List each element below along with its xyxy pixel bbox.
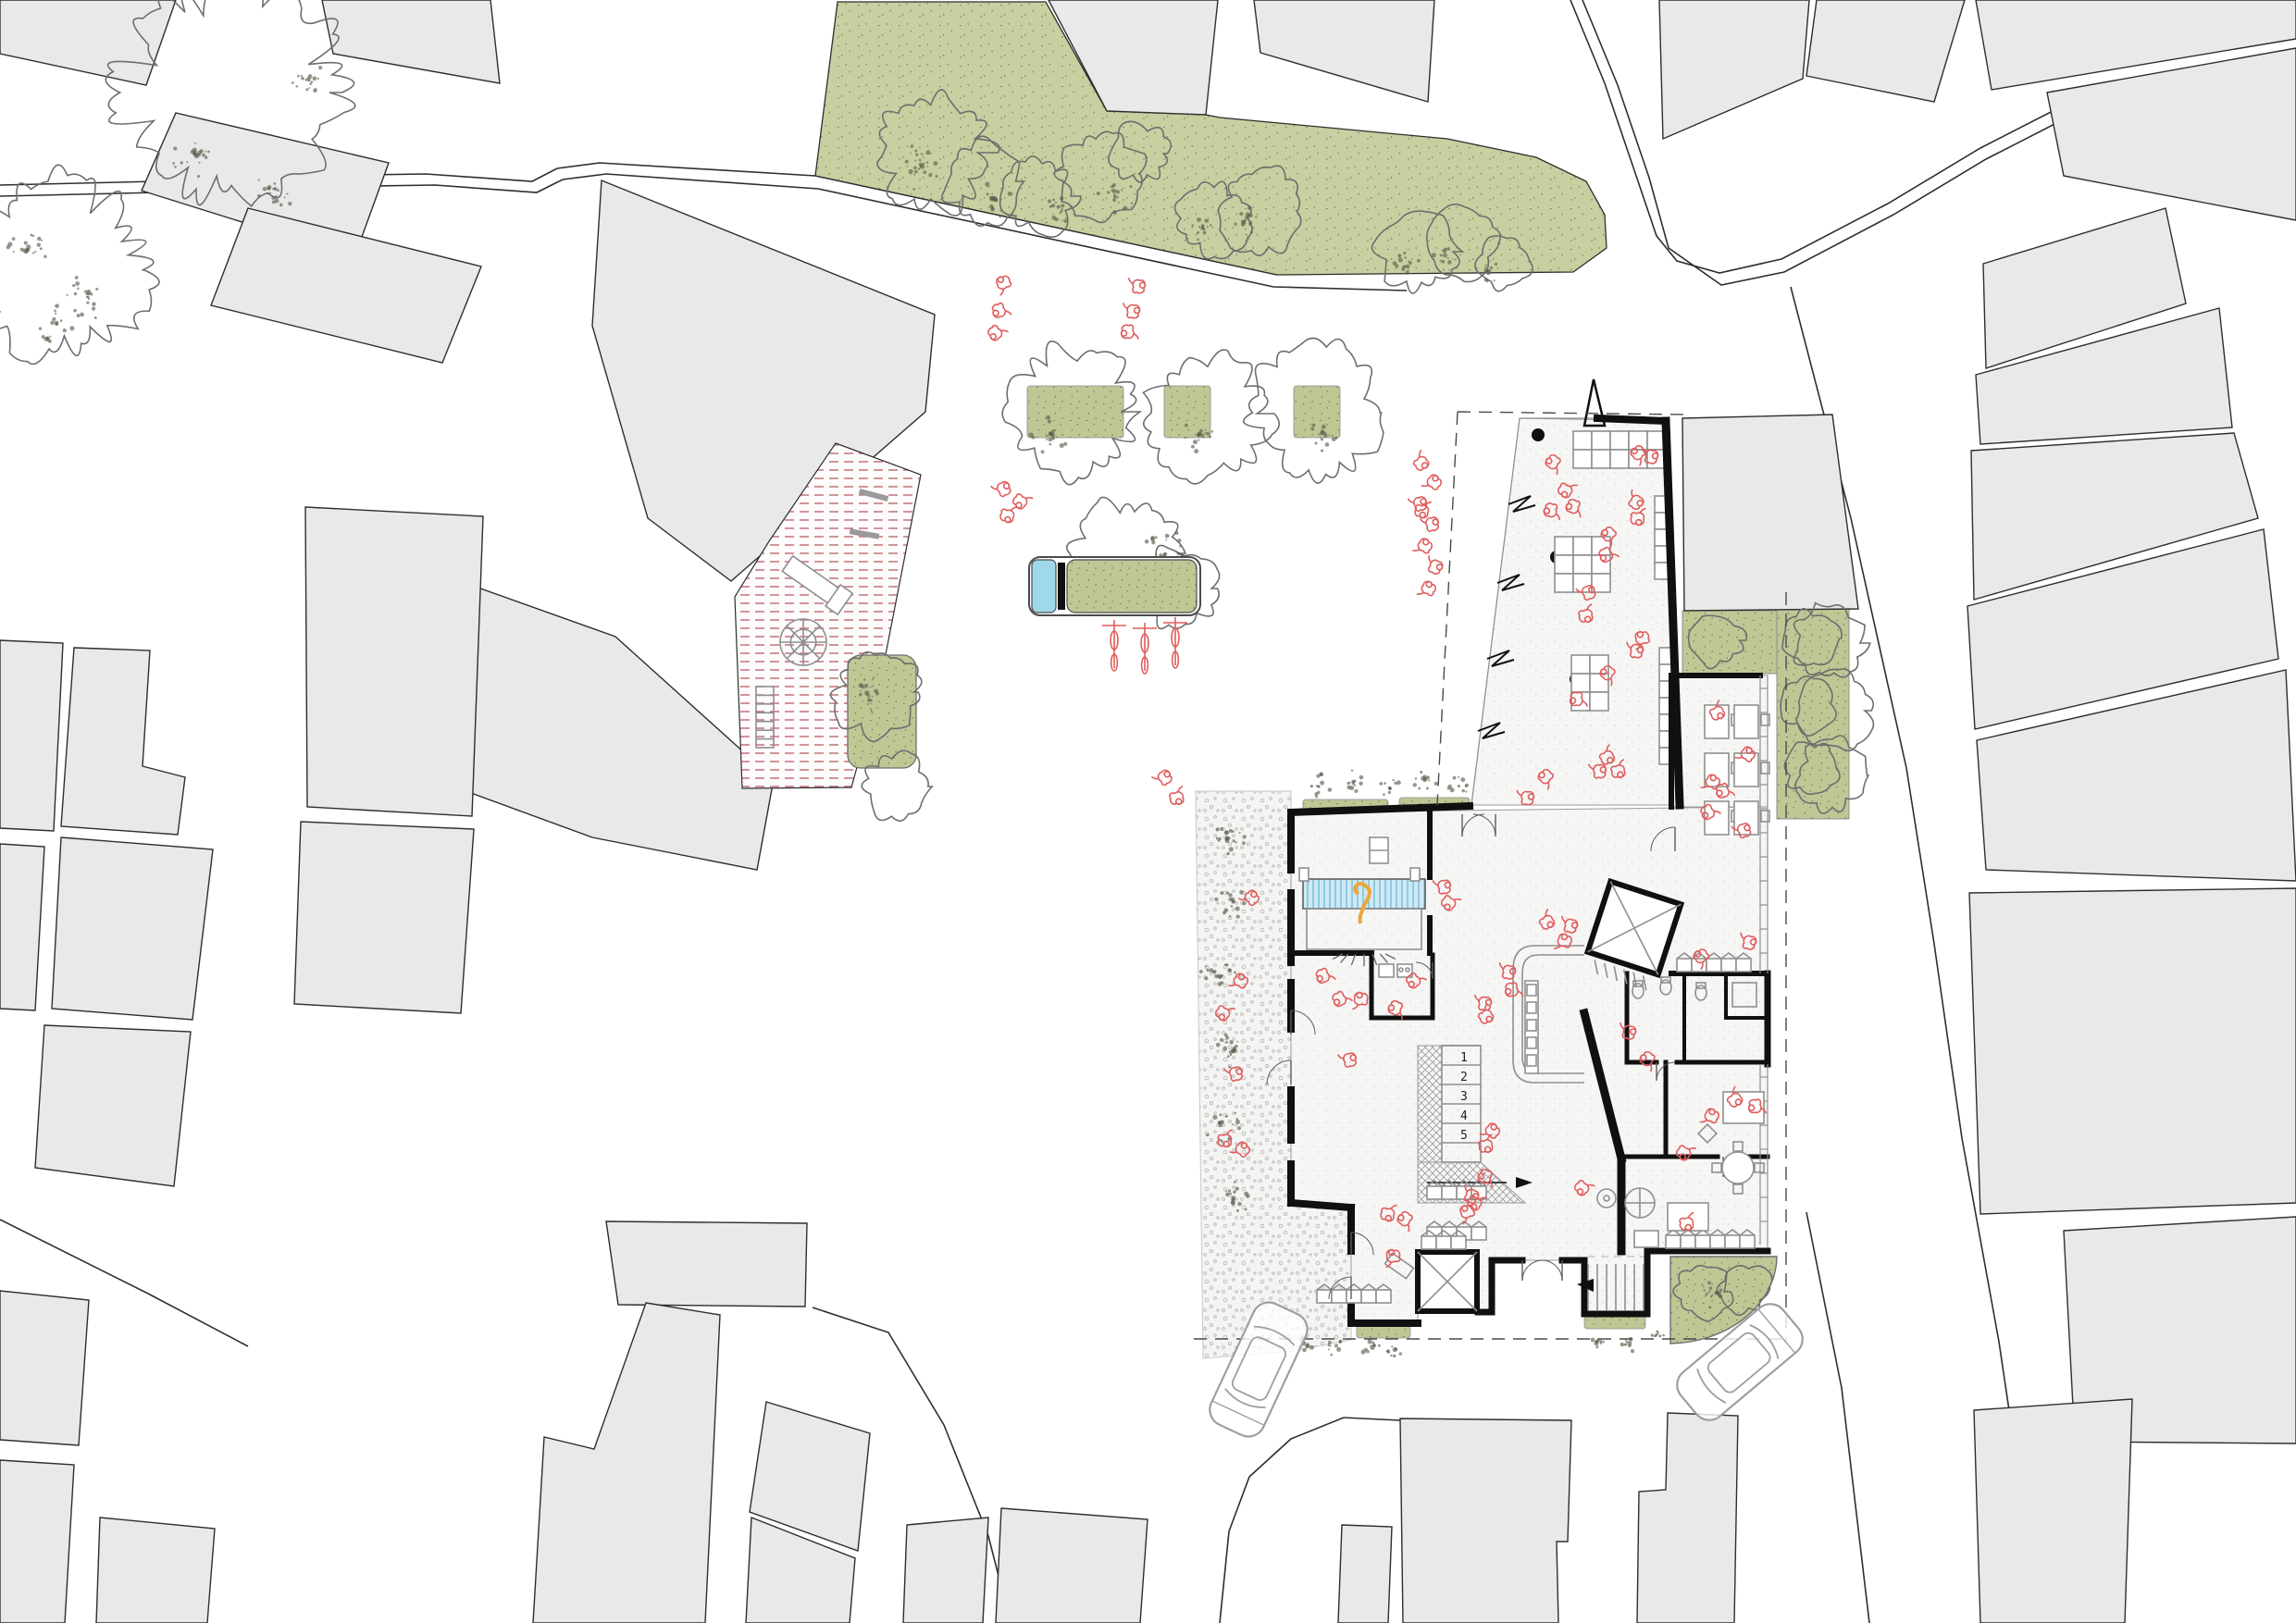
context-building: [533, 1303, 720, 1623]
market-shelf: [1629, 431, 1647, 450]
foliage-speckle: [1651, 1330, 1665, 1337]
garden-bed: [1682, 611, 1777, 674]
wall: [1597, 418, 1666, 421]
market-shelf: [1590, 674, 1608, 692]
planter-box: [1436, 1236, 1451, 1249]
context-building: [0, 640, 63, 831]
bicycle: [1102, 620, 1126, 671]
person-figure: [986, 321, 1008, 343]
market-shelf: [1555, 555, 1573, 574]
person-figure: [1409, 450, 1432, 472]
person-figure: [1408, 494, 1428, 513]
person-figure: [1127, 278, 1146, 293]
planter-box: [1376, 1290, 1391, 1303]
context-building: [606, 1221, 807, 1307]
office-desk: [1734, 705, 1758, 738]
property-line: [1458, 412, 1684, 415]
foliage-speckle: [6, 234, 47, 258]
market-shelf: [1571, 655, 1590, 674]
road: [1220, 1418, 1344, 1623]
office-desk: [1705, 753, 1729, 787]
planter-box: [1695, 1235, 1710, 1248]
planter-box: [1681, 1235, 1695, 1248]
floor-hall: [1471, 418, 1680, 805]
stair-number: 5: [1460, 1129, 1468, 1143]
road: [1806, 1212, 1869, 1623]
round-table: [1722, 1152, 1754, 1183]
kitchen-appliance: [1379, 964, 1394, 977]
planter-box: [1666, 1235, 1681, 1248]
context-building: [903, 1518, 988, 1623]
person-figure: [1121, 325, 1138, 340]
bicycle: [1133, 623, 1157, 674]
stair-number: 3: [1460, 1090, 1468, 1104]
foliage-speckle: [1413, 771, 1438, 790]
person-figure: [999, 504, 1017, 525]
context-building: [1682, 415, 1858, 611]
foliage-speckle: [1361, 1339, 1381, 1354]
market-shelf: [1592, 431, 1610, 450]
market-shelf: [1573, 431, 1592, 450]
foliage-speckle: [67, 276, 99, 319]
market-shelf: [1573, 555, 1592, 574]
planter-box: [1361, 1290, 1376, 1303]
person-figure: [1151, 767, 1173, 788]
foliage-speckle: [1379, 779, 1400, 796]
market-shelf: [1555, 574, 1573, 592]
foliage-speckle: [1310, 772, 1333, 798]
context-building: [0, 1460, 74, 1623]
planter-box: [1347, 1290, 1361, 1303]
stair-number: 1: [1460, 1051, 1468, 1065]
spider-web-climber: [780, 619, 826, 665]
person-figure: [1423, 555, 1445, 576]
site-plan-canvas: 12345: [0, 0, 2296, 1623]
planter-box: [1332, 1290, 1347, 1303]
foliage-speckle: [1447, 776, 1469, 793]
stair-number: 2: [1460, 1071, 1468, 1084]
wall: [1291, 1203, 1351, 1208]
person-figure: [1421, 472, 1444, 494]
planter-box: [1725, 1235, 1740, 1248]
context-building: [1974, 1399, 2132, 1623]
person-figure: [1122, 303, 1140, 318]
context-building: [322, 0, 500, 83]
planter-box: [1740, 1235, 1755, 1248]
planter-box: [1442, 1186, 1457, 1199]
foliage-speckle: [1347, 770, 1363, 793]
person-figure: [994, 274, 1013, 295]
context-building: [52, 837, 213, 1020]
context-building: [35, 1025, 191, 1186]
market-shelf: [1573, 537, 1592, 555]
planter-strip: [1164, 386, 1210, 438]
stair-number: 4: [1460, 1109, 1468, 1123]
copier: [1634, 1231, 1658, 1247]
planter-strip: [1294, 386, 1340, 438]
market-shelf: [1571, 674, 1590, 692]
planter-box: [1721, 959, 1736, 972]
person-figure: [991, 301, 1011, 320]
context-building: [305, 507, 483, 816]
context-building: [1338, 1525, 1392, 1623]
office-desk: [1705, 705, 1729, 738]
foliage-speckle: [39, 304, 75, 342]
planter-box: [1677, 959, 1692, 972]
tree-canopy: [1143, 350, 1279, 484]
food-truck: [1029, 557, 1200, 615]
context-building: [294, 822, 474, 1013]
person-figure: [1417, 579, 1437, 601]
person-figure: [991, 479, 1012, 500]
market-shelf: [1592, 450, 1610, 468]
planter-box: [1471, 1227, 1486, 1240]
market-shelf: [1555, 537, 1573, 555]
market-shelf: [1610, 431, 1629, 450]
context-building: [1637, 1413, 1738, 1623]
column: [1532, 428, 1545, 441]
market-shelf: [1590, 692, 1608, 711]
desk: [1668, 1203, 1708, 1231]
property-line: [1437, 412, 1458, 805]
context-building: [61, 648, 185, 835]
road: [1344, 1418, 1400, 1420]
context-building: [1400, 1419, 1571, 1623]
planter-box: [1736, 959, 1751, 972]
context-building: [1806, 0, 1965, 102]
planter-box: [1710, 1235, 1725, 1248]
bench: [1410, 868, 1420, 881]
context-building: [1969, 888, 2296, 1214]
market-shelf: [1573, 450, 1592, 468]
site-plan-svg: 12345: [0, 0, 2296, 1623]
context-building: [0, 844, 44, 1010]
road: [0, 163, 815, 185]
context-building: [0, 1291, 89, 1445]
planter-strip: [1584, 1316, 1645, 1329]
market-shelf: [1592, 537, 1610, 555]
context-building: [433, 576, 774, 870]
person-figure: [1169, 787, 1186, 806]
foliage-speckle: [1386, 1345, 1402, 1357]
planter-box: [1427, 1186, 1442, 1199]
market-shelf: [1610, 450, 1629, 468]
planter-box: [1421, 1236, 1436, 1249]
market-shelf: [1571, 692, 1590, 711]
office-desk: [1705, 801, 1729, 835]
person-figure: [1412, 536, 1433, 558]
context-building: [1659, 0, 1809, 139]
context-building: [96, 1518, 215, 1623]
planter-strip: [1027, 386, 1123, 438]
planter-strip: [1357, 1325, 1410, 1338]
stair-void-hatch: [1418, 1046, 1442, 1162]
context-building: [996, 1508, 1148, 1623]
foliage-speckle: [292, 66, 322, 93]
planter-box: [1451, 1236, 1466, 1249]
planter-box: [1706, 959, 1721, 972]
context-building: [1254, 0, 1434, 102]
bench: [1299, 868, 1309, 881]
elevator: [1418, 1252, 1477, 1311]
